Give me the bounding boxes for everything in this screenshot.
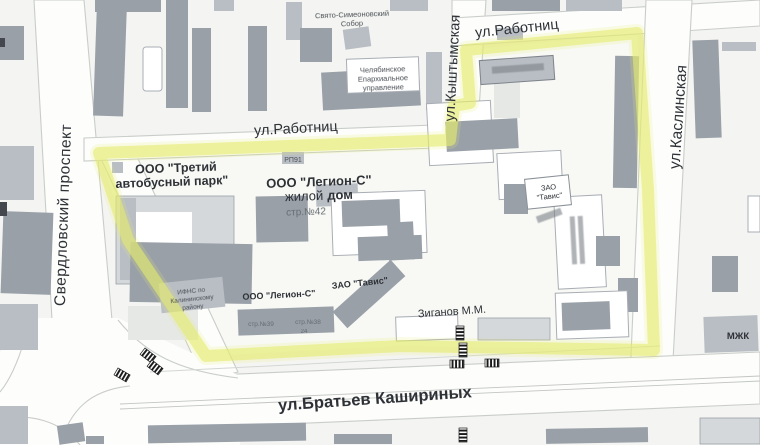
building	[192, 28, 211, 112]
label-str42: стр.№42	[286, 206, 327, 218]
label-24: 24	[301, 329, 308, 335]
label-str38: стр.№38	[295, 319, 321, 326]
building	[566, 0, 622, 11]
label-str39: стр.№39	[248, 321, 274, 328]
scan-artifact	[0, 38, 5, 47]
label-rp: РП91	[284, 157, 302, 164]
label-eparchy-line3: управление	[363, 82, 404, 92]
building	[504, 184, 528, 214]
label-cathedral-line2: Собор	[341, 19, 364, 29]
building	[248, 26, 267, 111]
building	[492, 0, 560, 11]
building	[1, 211, 54, 295]
building	[148, 423, 306, 444]
map-canvas: Свердловский проспект ул.Работниц ул.Раб…	[0, 0, 760, 445]
building	[748, 196, 760, 232]
building	[700, 418, 760, 444]
building	[86, 436, 104, 444]
building	[712, 256, 738, 292]
building	[95, 0, 161, 12]
building	[390, 0, 428, 11]
building	[478, 318, 550, 340]
building	[387, 221, 415, 260]
label-mzhk: МЖК	[727, 331, 749, 342]
crosswalk-icon	[450, 360, 464, 368]
crosswalk-icon	[456, 326, 464, 340]
scan-artifact	[0, 202, 7, 216]
building	[426, 52, 442, 110]
building	[286, 2, 302, 40]
building	[0, 146, 34, 200]
building	[562, 301, 611, 331]
building	[0, 406, 28, 444]
building-cathedral	[300, 28, 332, 62]
label-legion-dom: дом	[327, 187, 353, 203]
crosswalk-icon	[459, 343, 467, 357]
building	[93, 4, 127, 117]
building	[692, 40, 721, 139]
building	[596, 236, 620, 266]
building	[546, 427, 648, 444]
label-legion-zhiloy: жилой	[285, 188, 324, 204]
building	[57, 422, 85, 444]
building	[166, 0, 188, 108]
crosswalk-icon	[459, 428, 467, 442]
building	[334, 434, 392, 444]
building	[214, 0, 234, 11]
scanned-map: Свердловский проспект ул.Работниц ул.Раб…	[0, 0, 760, 445]
crosswalk-icon	[485, 359, 499, 367]
building	[722, 42, 756, 51]
label-legion-line2: жилойдом	[285, 187, 353, 204]
building	[143, 47, 162, 91]
building	[0, 304, 38, 350]
building	[343, 26, 372, 49]
